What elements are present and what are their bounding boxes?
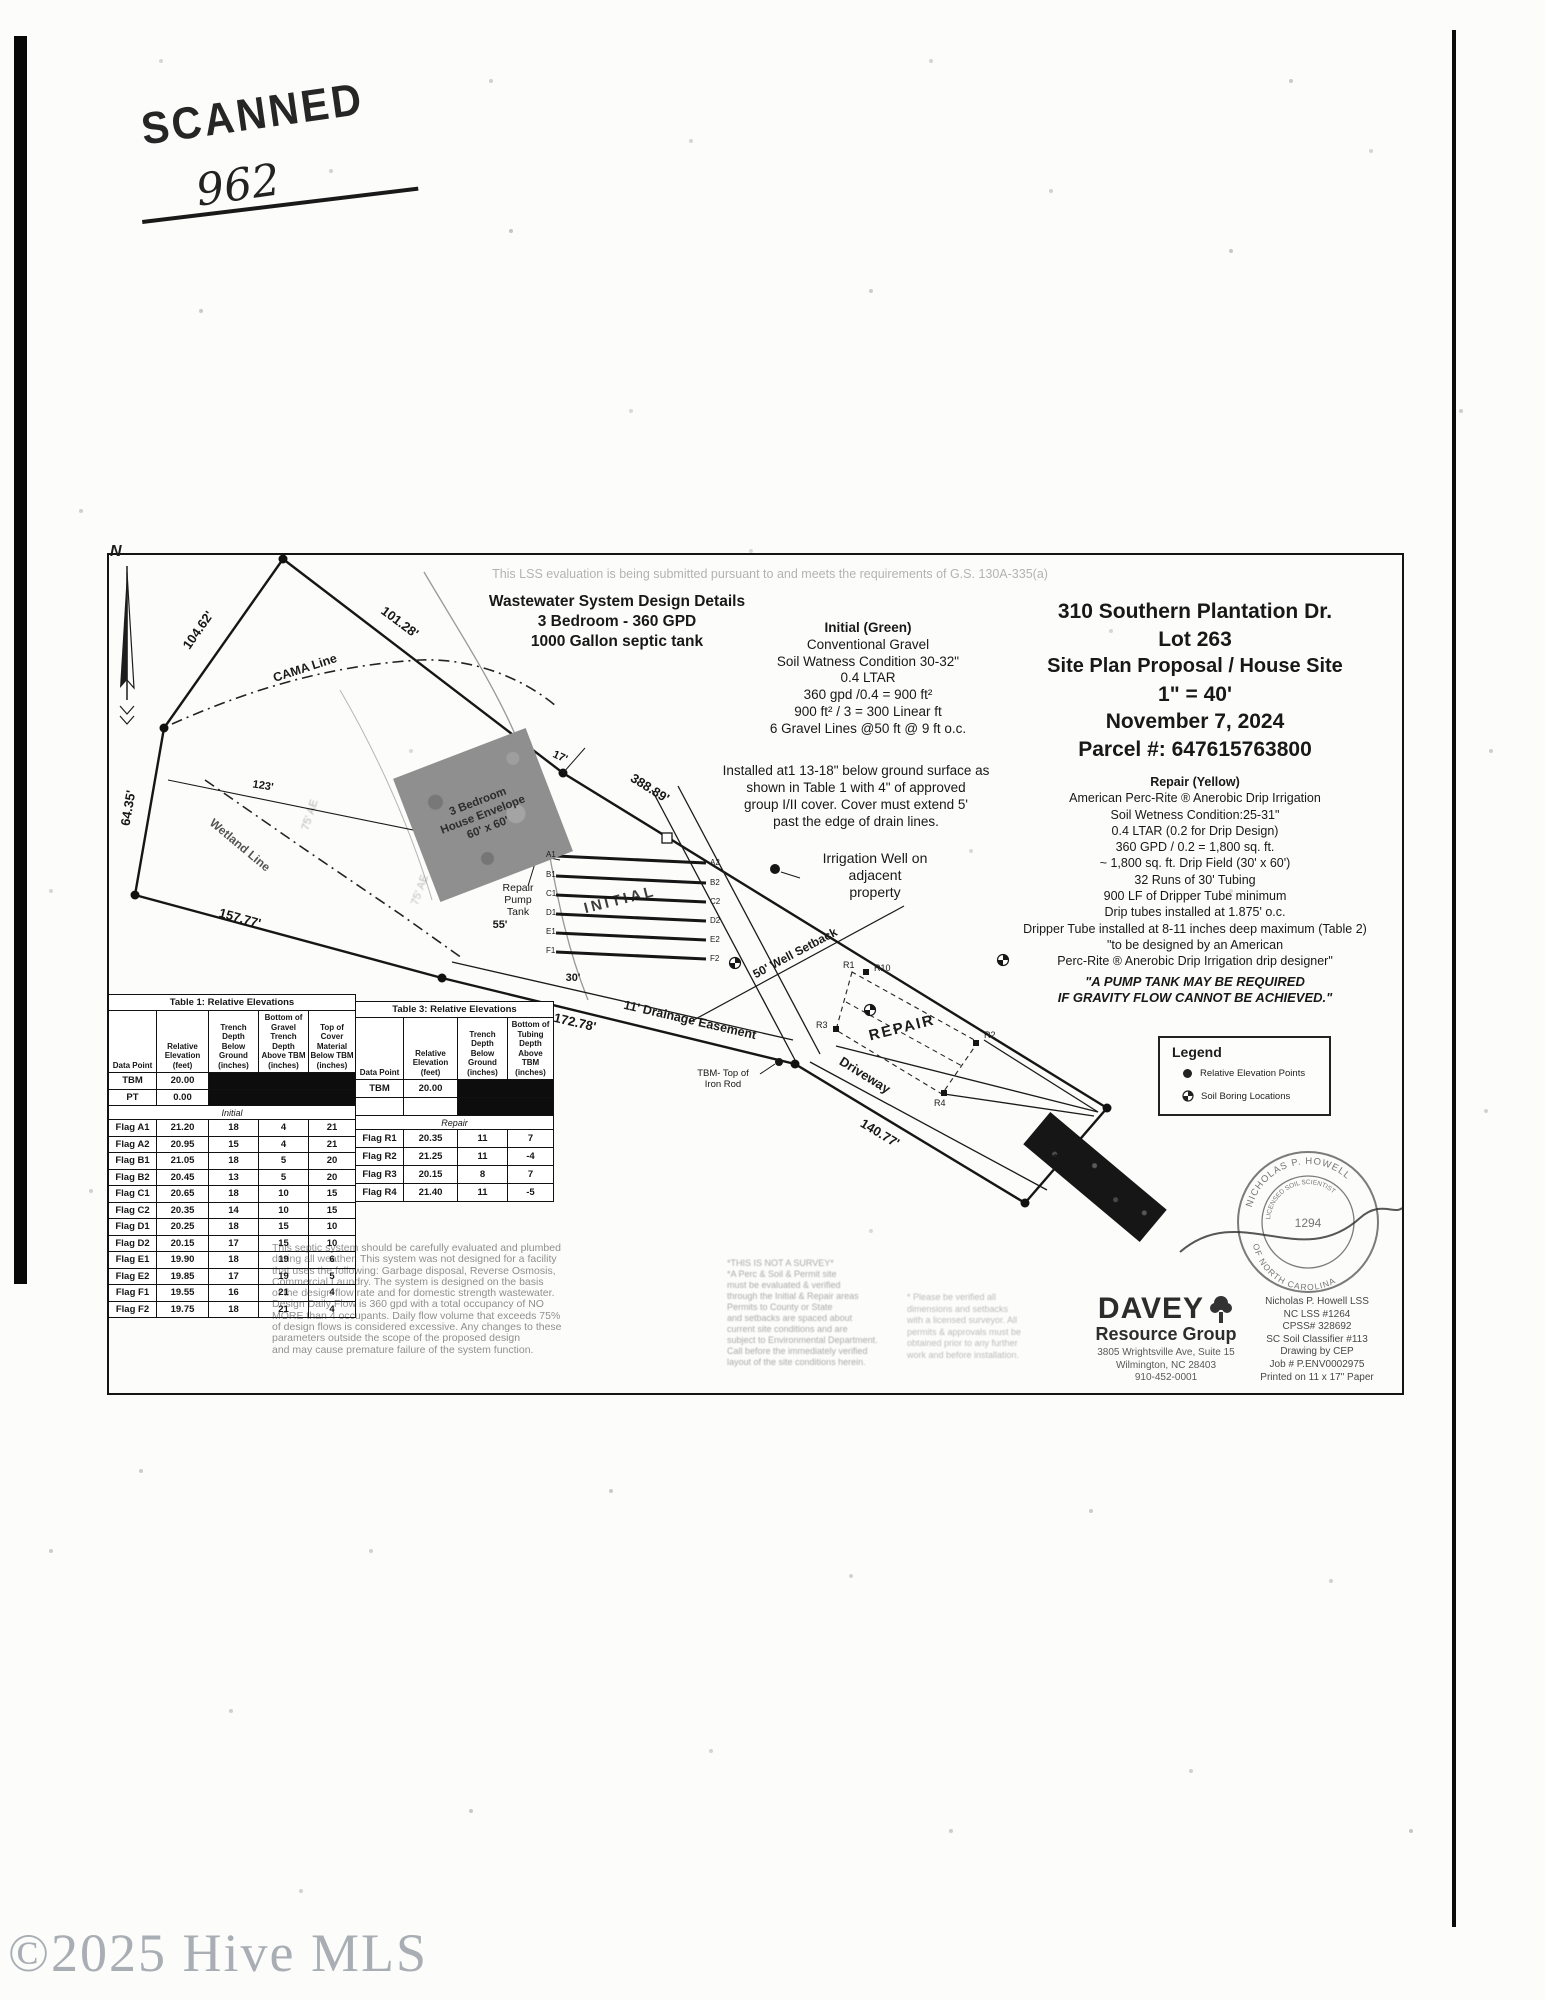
dim-30: 30' xyxy=(566,972,581,984)
faded-note-1: *THIS IS NOT A SURVEY**A Perc & Soil & P… xyxy=(727,1258,917,1368)
soil-boring-icon xyxy=(1182,1090,1194,1102)
table-row: Flag A220.9515421 xyxy=(109,1136,356,1153)
plan-subtitle: Site Plan Proposal / House Site xyxy=(1000,653,1390,681)
table-row: Flag R221.2511-4 xyxy=(356,1148,554,1166)
table-row: Flag R421.4011-5 xyxy=(356,1184,554,1202)
initial-system-block: Initial (Green) Conventional Gravel Soil… xyxy=(718,620,1018,738)
scan-edge-line-right xyxy=(1452,30,1456,1927)
firm-division: Resource Group xyxy=(1082,1324,1250,1344)
table3-section-repair: Repair xyxy=(356,1116,554,1130)
flag-b1: B1 xyxy=(546,870,556,879)
hive-mls-watermark: ©2025 Hive MLS xyxy=(8,1922,428,1984)
plan-date: November 7, 2024 xyxy=(1000,708,1390,736)
tbm-label: TBM- Top of Iron Rod xyxy=(688,1068,758,1090)
irrigation-well-note: Irrigation Well on adjacent property xyxy=(805,850,945,901)
install-note-block: Installed at1 13-18" below ground surfac… xyxy=(700,762,1012,830)
flag-d2: D2 xyxy=(710,916,720,925)
table3-container: Table 3: Relative Elevations Data PointR… xyxy=(355,1001,554,1202)
plan-scale: 1" = 40' xyxy=(1000,681,1390,709)
table3-relative-elevations: Table 3: Relative Elevations Data PointR… xyxy=(355,1001,554,1202)
firm-address-1: 3805 Wrightsville Ave, Suite 15 xyxy=(1082,1347,1250,1360)
repair-pump-tank-label: Repair Pump Tank xyxy=(492,882,544,918)
design-details-title: Wastewater System Design Details xyxy=(450,592,784,612)
table-row: Flag D120.25181510 xyxy=(109,1219,356,1236)
flag-f1: F1 xyxy=(546,946,555,955)
parcel-number: Parcel #: 647615763800 xyxy=(1000,736,1390,764)
dim-55: 55' xyxy=(493,919,508,931)
flag-e2: E2 xyxy=(710,935,720,944)
legend-title: Legend xyxy=(1172,1044,1222,1060)
legend: Legend Relative Elevation Points Soil Bo… xyxy=(1158,1036,1331,1116)
table-row: TBM20.00 xyxy=(356,1080,554,1098)
flag-r10: R10 xyxy=(874,963,891,973)
lot-number: Lot 263 xyxy=(1000,626,1390,654)
flag-r1: R1 xyxy=(843,960,855,970)
initial-block-title: Initial (Green) xyxy=(718,620,1018,637)
table-row xyxy=(356,1098,554,1116)
flag-r2: R2 xyxy=(984,1030,996,1040)
table3-title: Table 3: Relative Elevations xyxy=(356,1002,554,1018)
table-row: Flag R320.1587 xyxy=(356,1166,554,1184)
flag-c1: C1 xyxy=(546,889,556,898)
legend-item-boring: Soil Boring Locations xyxy=(1182,1090,1290,1102)
firm-block: DAVEY Resource Group 3805 Wrightsville A… xyxy=(1082,1294,1250,1385)
north-label: N xyxy=(110,543,122,561)
scan-edge-bar-left xyxy=(14,36,27,1284)
system-disclaimer: This septic system should be carefully e… xyxy=(272,1243,720,1356)
firm-name: DAVEY xyxy=(1098,1294,1204,1324)
pump-tank-warning-1: "A PUMP TANK MAY BE REQUIRED xyxy=(985,974,1405,990)
relative-elevation-point-icon xyxy=(1182,1068,1193,1079)
scanned-site-plan-page: SCANNED 962 This LSS evaluation is being… xyxy=(0,0,1545,2000)
flag-f2: F2 xyxy=(710,954,719,963)
repair-system-block: Repair (Yellow) American Perc-Rite ® Ane… xyxy=(985,774,1405,1006)
table-row: Flag R120.35117 xyxy=(356,1130,554,1148)
firm-phone: 910-452-0001 xyxy=(1082,1372,1250,1385)
flag-r4: R4 xyxy=(934,1098,946,1108)
table-row: Flag C220.35141015 xyxy=(109,1202,356,1219)
flag-r3: R3 xyxy=(816,1020,828,1030)
credentials-block: Nicholas P. Howell LSSNC LSS #1264 CPSS#… xyxy=(1248,1296,1386,1384)
table-row: TBM20.00 xyxy=(109,1073,356,1090)
flag-a2: A2 xyxy=(710,858,720,867)
pump-tank-warning-2: IF GRAVITY FLOW CANNOT BE ACHIEVED." xyxy=(985,990,1405,1006)
davey-tree-icon xyxy=(1208,1294,1234,1324)
faded-note-2: * Please be verified alldimensions and s… xyxy=(907,1292,1067,1361)
site-address: 310 Southern Plantation Dr. xyxy=(1000,598,1390,626)
title-block: 310 Southern Plantation Dr. Lot 263 Site… xyxy=(1000,598,1390,763)
legend-item-elevation: Relative Elevation Points xyxy=(1182,1068,1305,1079)
table-row: Flag C120.65181015 xyxy=(109,1186,356,1203)
table1-section-initial: Initial xyxy=(109,1106,356,1120)
table-row: Flag A121.2018421 xyxy=(109,1120,356,1137)
flag-b2: B2 xyxy=(710,878,720,887)
flag-e1: E1 xyxy=(546,927,556,936)
table-row: Flag B121.0518520 xyxy=(109,1153,356,1170)
table1-title: Table 1: Relative Elevations xyxy=(109,995,356,1011)
firm-address-2: Wilmington, NC 28403 xyxy=(1082,1360,1250,1373)
flag-c2: C2 xyxy=(710,897,720,906)
flag-a1: A1 xyxy=(546,850,556,859)
repair-block-title: Repair (Yellow) xyxy=(985,774,1405,790)
table-row: PT0.00 xyxy=(109,1089,356,1106)
flag-d1: D1 xyxy=(546,908,556,917)
scanned-stamp: SCANNED xyxy=(138,73,367,156)
table-row: Flag B220.4513520 xyxy=(109,1169,356,1186)
compliance-note: This LSS evaluation is being submitted p… xyxy=(320,567,1220,581)
